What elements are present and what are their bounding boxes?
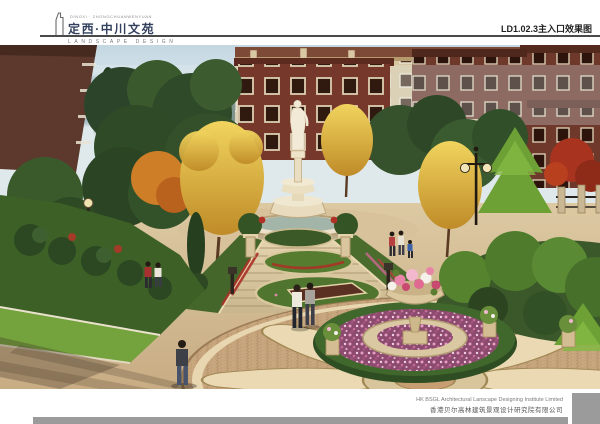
- presentation-sheet: DINGXI · ZHONGCHUANWENYUAN 定西·中川文苑 LANDS…: [0, 0, 600, 424]
- company-name-en: HK BSGL Architectural Lanscape Designing…: [416, 397, 563, 403]
- sheet-code: LD1.02.3主入口效果图: [501, 22, 592, 35]
- entrance-rendering-image: [0, 45, 600, 389]
- header-rule: [40, 35, 600, 37]
- company-name-cn: 香港贝尔高林建筑景观设计研究院有限公司: [430, 404, 563, 414]
- tower-logo-icon: [52, 11, 68, 38]
- footer-bar: [33, 417, 568, 424]
- footer-corner-block: [572, 393, 600, 424]
- logo-caption: DINGXI · ZHONGCHUANWENYUAN: [70, 14, 152, 19]
